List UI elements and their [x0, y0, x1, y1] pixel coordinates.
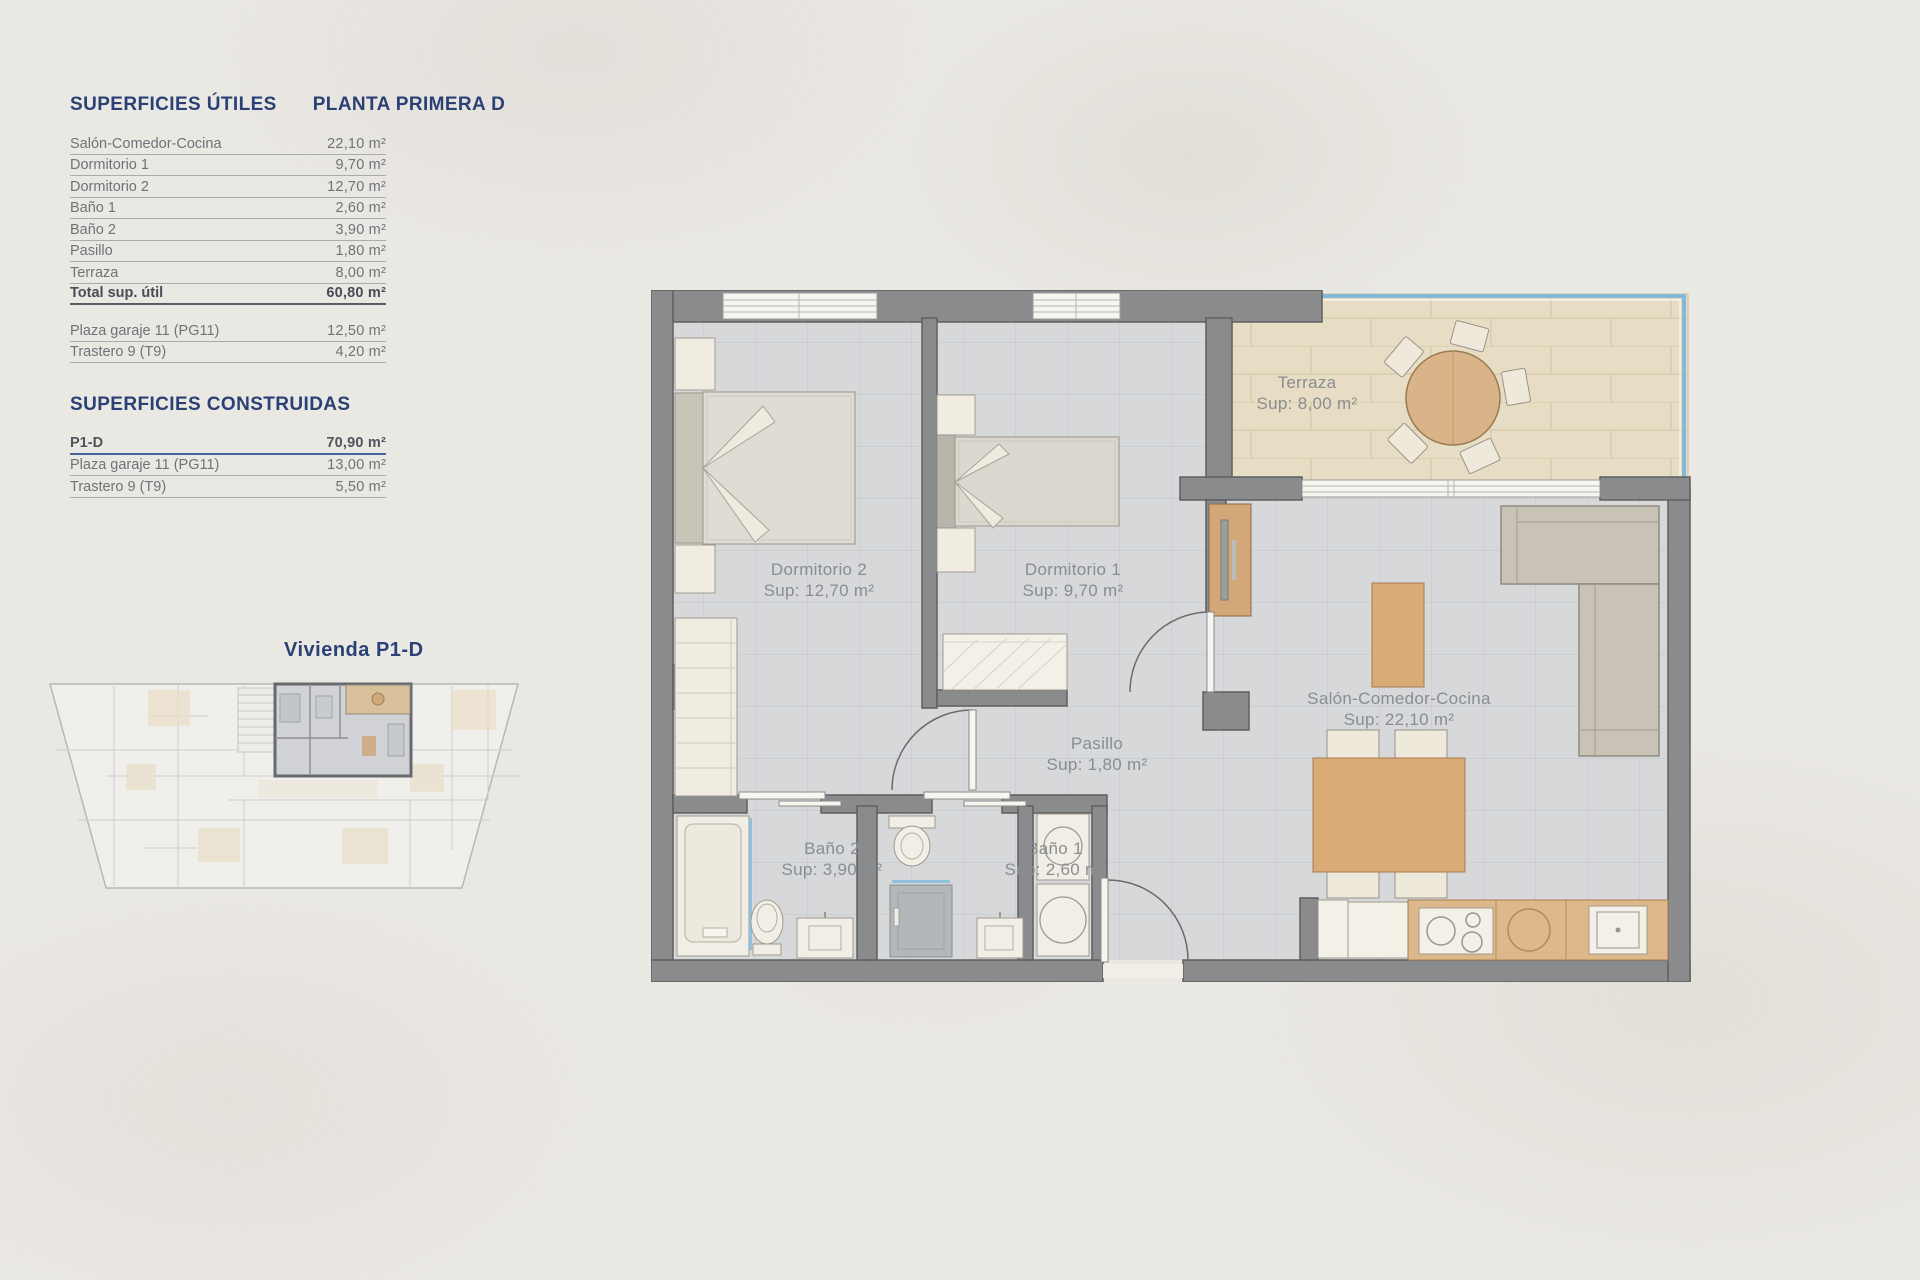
- table-row: Salón-Comedor-Cocina22,10 m²: [70, 133, 386, 155]
- floor-title: PLANTA PRIMERA D: [313, 94, 506, 116]
- built-surfaces-table: P1-D70,90 m² Plaza garaje 11 (PG11)13,00…: [70, 433, 386, 498]
- table-row: Dormitorio 19,70 m²: [70, 155, 386, 177]
- surface-table-panel: SUPERFICIES ÚTILES PLANTA PRIMERA D Saló…: [70, 94, 386, 498]
- room-label-bano1: Baño 1 Sup: 2,60 m²: [1005, 838, 1106, 880]
- bathtub: [677, 816, 749, 956]
- terrace-sliding-doors: [1302, 480, 1600, 497]
- table-row: Plaza garaje 11 (PG11)12,50 m²: [70, 320, 386, 342]
- total-row: Total sup. útil60,80 m²: [70, 284, 386, 306]
- table-row: Baño 23,90 m²: [70, 219, 386, 241]
- wardrobe: [675, 618, 737, 796]
- wardrobe: [943, 634, 1067, 690]
- built-surfaces-title: SUPERFICIES CONSTRUIDAS: [70, 394, 386, 416]
- sink-vanity: [977, 912, 1023, 958]
- keyplan-stairs: [238, 688, 276, 752]
- table-row: Terraza8,00 m²: [70, 262, 386, 284]
- unit-name-label: Vivienda P1-D: [284, 639, 424, 662]
- nightstand: [675, 545, 715, 593]
- toilet: [751, 900, 783, 955]
- shower-screen: [749, 818, 752, 950]
- room-label-dormitorio1: Dormitorio 1 Sup: 9,70 m²: [1023, 559, 1124, 601]
- coffee-table: [1372, 583, 1424, 687]
- bedroom2-window: [723, 293, 877, 319]
- bed-headboard: [937, 435, 955, 528]
- sink-vanity: [797, 912, 853, 958]
- useful-surfaces-table: Salón-Comedor-Cocina22,10 m² Dormitorio …: [70, 133, 386, 363]
- table-row: Pasillo1,80 m²: [70, 241, 386, 263]
- keyplan-highlight-unit: [275, 684, 411, 776]
- plan-sheet: SUPERFICIES ÚTILES PLANTA PRIMERA D Saló…: [0, 0, 1920, 1280]
- double-bed: [703, 392, 855, 544]
- room-label-dormitorio2: Dormitorio 2 Sup: 12,70 m²: [764, 559, 875, 601]
- panel-headers: SUPERFICIES ÚTILES PLANTA PRIMERA D: [70, 94, 386, 116]
- shower: [890, 880, 952, 957]
- chair: [1501, 368, 1531, 406]
- table-row: Baño 12,60 m²: [70, 198, 386, 220]
- table-row: Plaza garaje 11 (PG11)13,00 m²: [70, 455, 386, 477]
- building-key-plan: [48, 680, 520, 892]
- cooktop: [1419, 908, 1493, 954]
- fridge: [1348, 902, 1408, 958]
- dryer: [1037, 884, 1089, 956]
- bedroom1-window: [1033, 293, 1120, 319]
- tv-cabinet: [1209, 504, 1251, 616]
- laundry-closet: [1037, 814, 1089, 956]
- nightstand: [937, 395, 975, 435]
- room-label-pasillo: Pasillo Sup: 1,80 m²: [1047, 733, 1148, 775]
- room-label-terraza: Terraza Sup: 8,00 m²: [1257, 372, 1358, 414]
- kitchen-sink: [1589, 906, 1647, 954]
- room-label-salon: Salón-Comedor-Cocina Sup: 22,10 m²: [1307, 688, 1491, 730]
- bed-headboard: [675, 393, 703, 543]
- kitchen-counter: [1318, 900, 1668, 960]
- nightstand: [675, 338, 715, 390]
- nightstand: [937, 528, 975, 572]
- chair: [1327, 730, 1379, 760]
- room-label-bano2: Baño 2 Sup: 3,90 m²: [782, 838, 883, 880]
- table-row: Dormitorio 212,70 m²: [70, 176, 386, 198]
- dining-table: [1313, 758, 1465, 872]
- table-row: Trastero 9 (T9)5,50 m²: [70, 476, 386, 498]
- single-bed: [955, 437, 1119, 526]
- apartment-floor-plan: Terraza Sup: 8,00 m² Dormitorio 2 Sup: 1…: [651, 290, 1691, 982]
- chair: [1395, 730, 1447, 760]
- useful-surfaces-title: SUPERFICIES ÚTILES: [70, 94, 277, 116]
- table-row: Trastero 9 (T9)4,20 m²: [70, 342, 386, 364]
- table-row: P1-D70,90 m²: [70, 433, 386, 455]
